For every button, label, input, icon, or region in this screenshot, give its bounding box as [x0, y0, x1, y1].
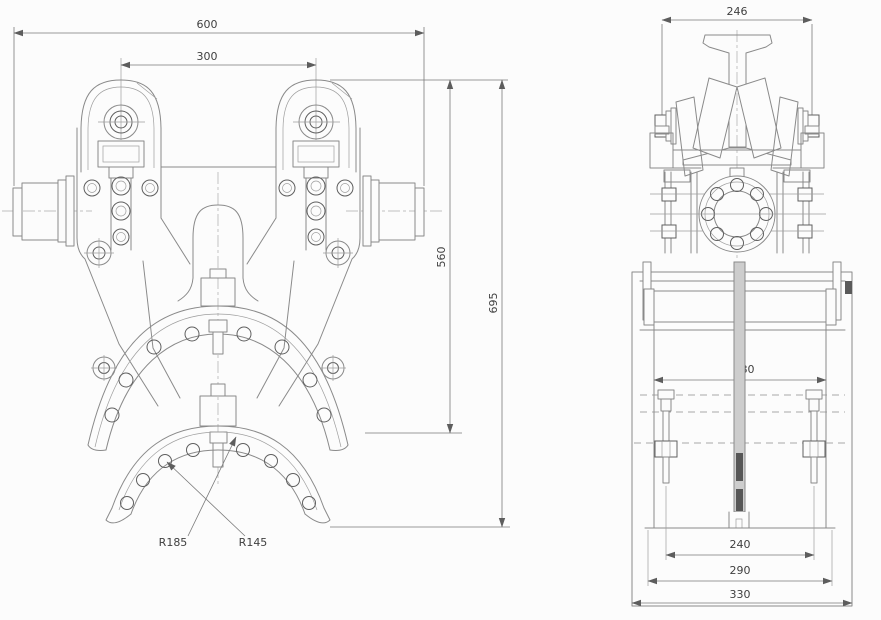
- dim-label-246: 246: [727, 5, 748, 18]
- technical-drawing: 600 300: [0, 0, 881, 620]
- dim-label-R185: R185: [159, 536, 188, 549]
- radius-callout-outer: R185: [159, 437, 236, 549]
- knurled-flange: [650, 168, 826, 252]
- dim-wheel-spacing: 300: [121, 50, 316, 140]
- dim-label-560: 560: [435, 247, 448, 268]
- bracket-left: [650, 172, 705, 253]
- dim-height-to-clamp: 560: [330, 80, 508, 433]
- side-view: 246: [650, 5, 826, 260]
- bracket-right: [769, 172, 824, 253]
- dim-label-300: 300: [197, 50, 218, 63]
- dim-label-R145: R145: [239, 536, 268, 549]
- drawing-sheet: 600 300: [0, 0, 881, 620]
- dim-label-240: 240: [730, 538, 751, 551]
- stud-left: [655, 390, 677, 483]
- latch-block: [845, 281, 852, 294]
- dim-base-width: 330: [632, 588, 852, 603]
- dim-label-290: 290: [730, 564, 751, 577]
- stud-right: [803, 390, 825, 483]
- dim-height-overall: 695: [330, 80, 510, 527]
- dim-overall-width: 600: [14, 18, 424, 186]
- center-shaft: [729, 262, 749, 528]
- front-view: 600 300: [2, 18, 510, 549]
- dim-label-330: 330: [730, 588, 751, 601]
- bottom-view: 280: [632, 262, 852, 606]
- dim-label-600: 600: [197, 18, 218, 31]
- adjust-spindle-left: [2, 176, 92, 246]
- dim-label-695: 695: [487, 293, 500, 314]
